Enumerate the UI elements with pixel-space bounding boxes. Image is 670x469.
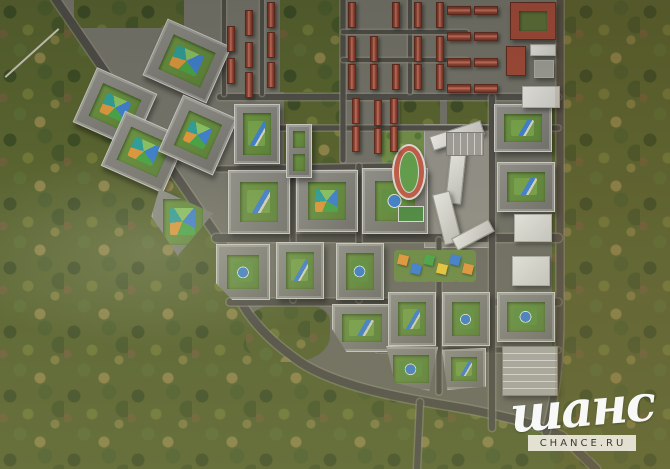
grid-block-k bbox=[336, 243, 384, 300]
play-tent bbox=[462, 263, 474, 275]
townhouse bbox=[227, 26, 235, 52]
courtyard-block-d-courtyard bbox=[174, 110, 222, 159]
townhouse bbox=[348, 2, 356, 28]
grid-block-o-playground bbox=[457, 309, 474, 329]
grid-block-l-courtyard bbox=[342, 314, 382, 342]
grid-block-k-playground bbox=[351, 260, 368, 281]
east-block-t-courtyard bbox=[507, 172, 545, 202]
grid-block-k-courtyard bbox=[346, 253, 374, 290]
grid-block-j bbox=[276, 242, 324, 299]
brick-u-building bbox=[510, 2, 556, 40]
triangle-block-playground bbox=[170, 208, 195, 235]
public-building-r bbox=[522, 86, 560, 108]
townhouse bbox=[227, 58, 235, 84]
grid-block-g-courtyard bbox=[308, 182, 346, 220]
parking-lot bbox=[446, 132, 484, 156]
courtyard-block-d-playground bbox=[183, 120, 212, 149]
public-building-u bbox=[514, 214, 552, 242]
brick-u-building-courtyard bbox=[519, 11, 547, 31]
townhouse bbox=[474, 6, 498, 15]
grid-block-i bbox=[216, 244, 270, 300]
south-block-q-playground bbox=[456, 362, 472, 376]
townhouse bbox=[352, 126, 360, 152]
townhouse bbox=[474, 58, 498, 67]
townhouse bbox=[245, 42, 253, 68]
play-tent bbox=[423, 254, 435, 266]
south-block-q-courtyard bbox=[451, 357, 477, 381]
townhouse bbox=[392, 2, 400, 28]
townhouse bbox=[267, 62, 275, 88]
south-block-p bbox=[384, 346, 438, 392]
townhouse bbox=[447, 84, 471, 93]
south-block-q bbox=[442, 348, 486, 390]
south-block-p-playground bbox=[399, 361, 421, 377]
east-block-s-playground bbox=[511, 120, 535, 136]
north-double-block-courtyard bbox=[293, 131, 305, 148]
play-tent bbox=[449, 254, 461, 266]
courtyard-block-b bbox=[142, 18, 231, 103]
grid-block-g-playground bbox=[315, 190, 339, 212]
grid-block-i-courtyard bbox=[227, 255, 259, 289]
north-tall-block-playground bbox=[248, 121, 265, 145]
townhouse bbox=[447, 58, 471, 67]
townhouse bbox=[414, 36, 422, 62]
stadium-track bbox=[392, 144, 426, 200]
south-block-p-courtyard bbox=[393, 355, 429, 383]
townhouse bbox=[370, 36, 378, 62]
brick-building-2 bbox=[506, 46, 526, 76]
townhouse bbox=[374, 128, 382, 154]
townhouse bbox=[370, 64, 378, 90]
public-building-v bbox=[512, 256, 550, 286]
north-double-block bbox=[286, 124, 312, 178]
parking-garage bbox=[502, 346, 558, 396]
townhouse bbox=[374, 100, 382, 126]
stadium-field bbox=[399, 151, 419, 193]
triangle-block bbox=[150, 186, 216, 258]
townhouse bbox=[436, 2, 444, 28]
grid-block-n-courtyard bbox=[398, 302, 426, 336]
townhouse bbox=[348, 36, 356, 62]
kindergarten-playground bbox=[394, 250, 476, 282]
townhouse bbox=[390, 98, 398, 124]
east-block-s-courtyard bbox=[504, 114, 542, 142]
grid-block-f-courtyard bbox=[240, 182, 278, 222]
courtyard-block-b-courtyard bbox=[158, 34, 215, 87]
gray-slab bbox=[534, 60, 554, 78]
east-block-w-courtyard bbox=[507, 302, 545, 332]
north-double-block-courtyard bbox=[293, 154, 305, 171]
grid-block-n bbox=[388, 292, 436, 346]
grid-block-f bbox=[228, 170, 290, 234]
north-tall-block-courtyard bbox=[243, 113, 271, 155]
townhouse bbox=[348, 64, 356, 90]
site-plan-map: шанс CHANCE.RU bbox=[0, 0, 670, 469]
grid-block-o bbox=[442, 292, 490, 346]
white-slab bbox=[530, 44, 556, 56]
townhouse bbox=[267, 2, 275, 28]
play-tent bbox=[397, 254, 409, 266]
grid-block-o-courtyard bbox=[452, 302, 480, 336]
play-tent bbox=[410, 263, 422, 275]
townhouse bbox=[474, 84, 498, 93]
grid-block-l bbox=[332, 304, 392, 352]
north-tall-block bbox=[234, 104, 280, 164]
buildings-layer bbox=[0, 0, 670, 469]
east-block-s bbox=[494, 104, 552, 152]
townhouse bbox=[245, 72, 253, 98]
courtyard-block-b-playground bbox=[169, 45, 204, 77]
townhouse bbox=[436, 64, 444, 90]
play-tent bbox=[436, 263, 448, 275]
grid-block-i-playground bbox=[233, 262, 253, 282]
east-block-t bbox=[497, 162, 555, 212]
sports-court bbox=[398, 206, 424, 222]
triangle-block-courtyard bbox=[163, 199, 203, 245]
townhouse bbox=[392, 64, 400, 90]
grid-block-j-playground bbox=[291, 259, 308, 280]
courtyard-block-c-playground bbox=[127, 136, 160, 166]
grid-block-n-playground bbox=[403, 309, 420, 329]
townhouse bbox=[267, 32, 275, 58]
townhouse bbox=[474, 32, 498, 41]
townhouse bbox=[447, 6, 471, 15]
grid-block-j-courtyard bbox=[286, 252, 314, 289]
townhouse bbox=[390, 126, 398, 152]
townhouse bbox=[245, 10, 253, 36]
east-block-w bbox=[497, 292, 555, 342]
grid-block-l-playground bbox=[349, 320, 374, 336]
grid-block-f-playground bbox=[247, 190, 271, 213]
townhouse bbox=[447, 32, 471, 41]
townhouse bbox=[414, 64, 422, 90]
grid-block-g bbox=[296, 170, 358, 232]
townhouse bbox=[414, 2, 422, 28]
east-block-t-playground bbox=[514, 178, 538, 195]
townhouse bbox=[436, 36, 444, 62]
east-block-w-playground bbox=[514, 308, 538, 325]
townhouse bbox=[352, 98, 360, 124]
